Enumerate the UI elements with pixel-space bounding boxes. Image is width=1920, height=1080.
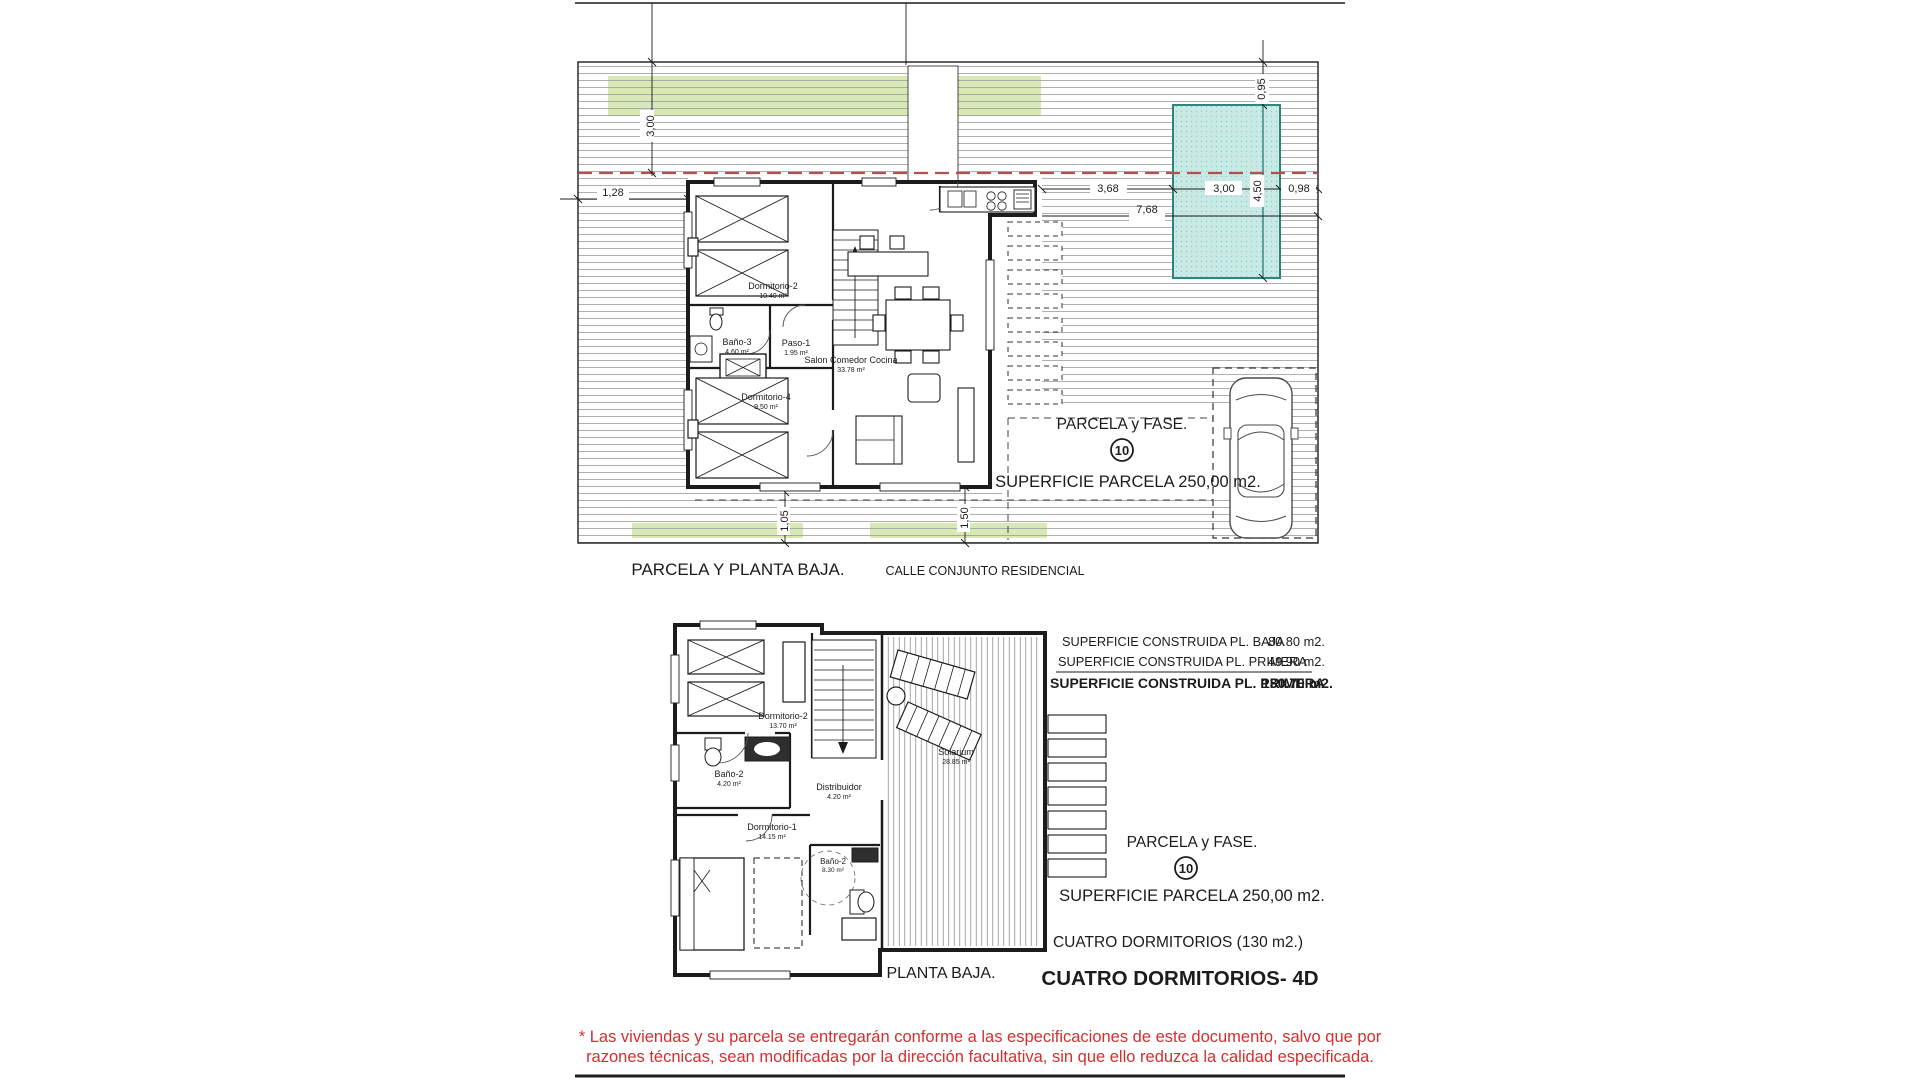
dim-0-98: 0,98 <box>1288 183 1309 195</box>
room-area-bano3: 4.60 m² <box>725 349 749 356</box>
bedrooms-note: CUATRO DORMITORIOS (130 m2.) <box>1053 934 1303 951</box>
room-label-dormitorio4: Dormitorio-4 <box>741 392 791 402</box>
disclaimer-line2: razones técnicas, sean modificadas por l… <box>586 1048 1374 1066</box>
side-table <box>887 687 905 705</box>
room-area-dormitorio1: 14.15 m² <box>758 834 786 841</box>
room-area-bano2: 4.20 m² <box>717 781 741 788</box>
street-label: CALLE CONJUNTO RESIDENCIAL <box>885 564 1084 578</box>
plan-drawing: Dormitorio-2 10.40 m² Baño-3 4.60 m² Pas… <box>0 0 1920 1080</box>
room-area-dormitorio2: 10.40 m² <box>759 293 787 300</box>
built-area-baja-value: 80.80 m2. <box>1268 634 1325 649</box>
built-area-total-value: 130.70 m2. <box>1262 675 1333 691</box>
room-label-bano2: Baño-2 <box>714 769 743 779</box>
room-label-bano2b: Baño-2 <box>820 857 846 866</box>
built-area-baja-label: SUPERFICIE CONSTRUIDA PL. BAJA <box>1062 634 1285 649</box>
bottom-plan-caption: PLANTA BAJA. <box>886 965 995 982</box>
room-label-bano3: Baño-3 <box>722 337 751 347</box>
room-label-solarium: Solarium <box>938 747 974 757</box>
upper-staircase <box>812 640 876 758</box>
fridge <box>1014 190 1031 209</box>
parcel-number-bottom: 10 <box>1179 861 1193 876</box>
building-ground-floor <box>684 178 1035 491</box>
car <box>1224 378 1298 538</box>
room-label-dormitorio1: Dormitorio-1 <box>747 822 797 832</box>
parcel-number-top: 10 <box>1115 443 1129 458</box>
dim-7-68: 7,68 <box>1136 204 1157 216</box>
plan-title: CUATRO DORMITORIOS- 4D <box>1041 967 1318 990</box>
room-label-distribuidor: Distribuidor <box>816 782 862 792</box>
room-area-dormitorio4: 9.50 m² <box>754 404 778 411</box>
wardrobe-dashed <box>754 858 802 948</box>
room-label-dormitorio2: Dormitorio-2 <box>748 281 798 291</box>
dim-3-00-h: 3,00 <box>1213 183 1234 195</box>
room-area-bano2b: 8.30 m² <box>822 867 845 874</box>
kitchen <box>940 187 1035 212</box>
dim-3-68: 3,68 <box>1097 183 1118 195</box>
room-label-salon: Salon Comedor Cocina <box>804 355 897 365</box>
room-area-salon: 33.78 m² <box>837 367 865 374</box>
dim-4-50: 4,50 <box>1252 180 1264 201</box>
built-area-primera-value: 49.90 m2. <box>1268 654 1325 669</box>
bottom-plan: Dormitorio-2 13.70 m² Baño-2 4.20 m² Dis… <box>671 621 1333 990</box>
dim-0-95: 0,95 <box>1256 78 1268 99</box>
armchair <box>908 374 940 402</box>
dim-1-28: 1,28 <box>602 187 623 199</box>
dim-3-00-v: 3,00 <box>645 115 657 136</box>
parcel-area-label-bottom: SUPERFICIE PARCELA 250,00 m2. <box>1059 887 1325 905</box>
disclaimer: * Las viviendas y su parcela se entregar… <box>579 1028 1382 1066</box>
wardrobe <box>783 642 805 702</box>
disclaimer-line1: * Las viviendas y su parcela se entregar… <box>579 1028 1382 1046</box>
parcel-fase-label-top: PARCELA y FASE. <box>1057 416 1188 433</box>
tv-bench <box>958 388 974 462</box>
top-plan-caption: PARCELA Y PLANTA BAJA. <box>631 560 844 579</box>
dim-1-50: 1,50 <box>959 507 971 528</box>
plan-sheet: Dormitorio-2 10.40 m² Baño-3 4.60 m² Pas… <box>0 0 1920 1080</box>
top-plan: Dormitorio-2 10.40 m² Baño-3 4.60 m² Pas… <box>560 3 1322 579</box>
room-area-distribuidor: 4.20 m² <box>827 794 851 801</box>
parcel-fase-label-bottom: PARCELA y FASE. <box>1127 834 1258 851</box>
upper-bano2-fixtures <box>705 733 790 766</box>
room-label-paso1: Paso-1 <box>782 338 811 348</box>
room-label-dormitorio2-p1: Dormitorio-2 <box>758 711 808 721</box>
parcel-area-label-top: SUPERFICIE PARCELA 250,00 m2. <box>995 473 1261 491</box>
dim-1-05: 1,05 <box>779 510 791 531</box>
room-area-dormitorio2-p1: 13.70 m² <box>769 723 797 730</box>
built-areas-block: SUPERFICIE CONSTRUIDA PL. BAJA 80.80 m2.… <box>1050 634 1333 691</box>
exterior-steps <box>1048 715 1106 877</box>
room-area-solarium: 28.85 m² <box>942 759 970 766</box>
entry-path <box>908 66 958 182</box>
